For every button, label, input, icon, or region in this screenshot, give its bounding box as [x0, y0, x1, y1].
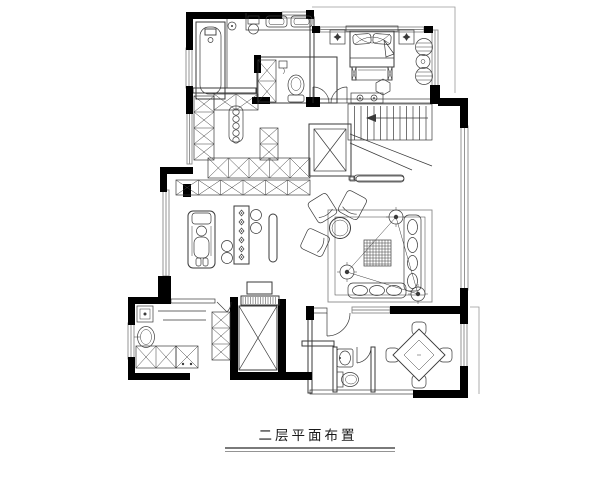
staircase — [314, 106, 432, 181]
wardrobe-outer-row — [176, 180, 310, 195]
door-arc — [327, 313, 350, 336]
elevator-shaft — [239, 306, 277, 370]
window — [187, 112, 192, 164]
interior-walls — [171, 14, 438, 394]
door-arc — [217, 302, 231, 312]
window — [461, 322, 467, 368]
window — [186, 48, 192, 88]
laundry-basin — [134, 327, 155, 348]
wc-toilet — [288, 75, 304, 102]
round-tea-table — [330, 218, 351, 239]
window — [432, 30, 438, 86]
speaker-2 — [337, 262, 357, 282]
window — [461, 126, 468, 290]
wardrobe-side-column — [260, 128, 278, 160]
hatched-rug-panel — [364, 240, 391, 266]
laundry-room — [134, 306, 230, 368]
side-cabinets — [212, 312, 230, 360]
stair-direction-arrow — [366, 114, 428, 122]
paper-holder — [279, 61, 287, 74]
plan-title: 二层平面布置 — [259, 428, 358, 444]
bed-end-bench — [352, 67, 392, 80]
family-area — [188, 206, 277, 268]
shaft-x-marker — [239, 306, 277, 370]
barrel-chair-lower — [416, 68, 433, 85]
computer-monitor — [247, 282, 272, 294]
barrel-chair-upper — [416, 39, 433, 56]
window — [163, 190, 169, 276]
lounge — [300, 176, 432, 304]
tall-cabinet — [176, 346, 198, 368]
wardrobe-bottom-row — [208, 158, 310, 178]
mahjong-room — [386, 322, 452, 388]
keyboard-shelf — [241, 296, 279, 305]
door-arc — [357, 347, 371, 363]
floor-plan-page: 二层平面布置 — [0, 0, 600, 480]
open-void — [314, 129, 346, 171]
floor-plan-drawing: 二层平面布置 — [0, 0, 600, 480]
hexagonal-ottoman — [376, 79, 390, 95]
worktable — [158, 311, 206, 320]
bathtub — [196, 22, 225, 99]
island-dresser — [229, 106, 243, 143]
game-table — [234, 206, 249, 264]
chaise-sofa — [404, 215, 421, 291]
master-bedroom — [330, 26, 433, 103]
armchair-3 — [300, 228, 331, 258]
guest-bathroom — [337, 349, 359, 387]
square-game-table — [393, 329, 445, 381]
title-block: 二层平面布置 — [225, 428, 395, 452]
armchair-2 — [337, 189, 368, 221]
wardrobe-top-run — [214, 94, 258, 110]
wc-room — [258, 60, 304, 102]
dresser — [351, 93, 383, 103]
study-nook — [241, 282, 279, 305]
slim-bench — [269, 214, 277, 262]
walk-in-closet — [176, 94, 310, 195]
window — [128, 323, 134, 359]
wardrobe-left-column — [194, 96, 214, 160]
wash-basin — [337, 349, 353, 367]
window — [282, 12, 308, 18]
guest-toilet — [337, 372, 359, 387]
bottom-sofa — [348, 283, 406, 298]
base-cabinets — [136, 346, 176, 368]
door-arc — [331, 87, 347, 103]
recliner — [188, 211, 215, 268]
washing-machine — [137, 306, 153, 322]
window — [352, 307, 390, 313]
floor-drain — [228, 22, 236, 30]
round-side-table — [416, 55, 430, 69]
